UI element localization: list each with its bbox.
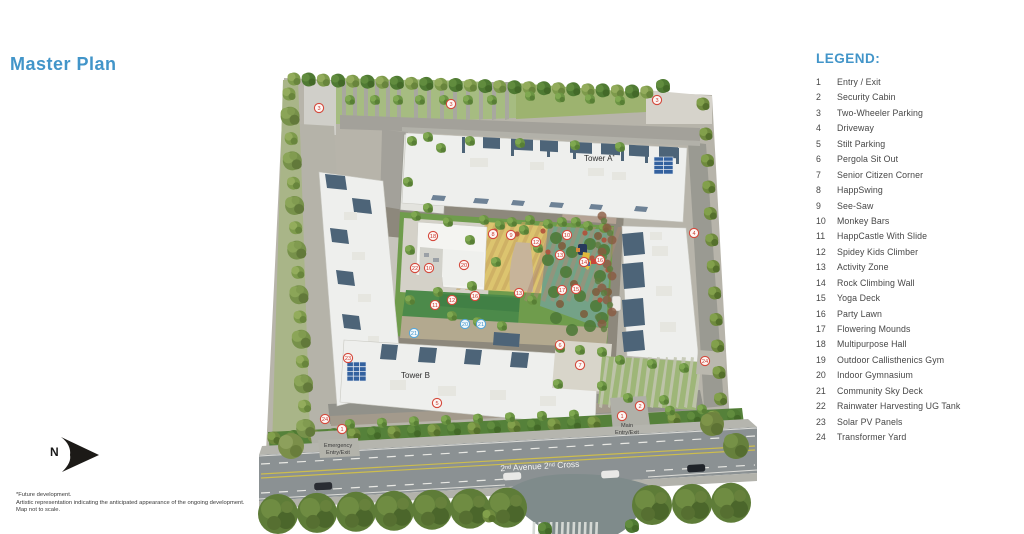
- svg-text:Entry/Exit: Entry/Exit: [615, 430, 639, 436]
- svg-text:17: 17: [559, 288, 565, 294]
- svg-text:10: 10: [426, 266, 432, 272]
- svg-text:24: 24: [702, 359, 708, 365]
- svg-text:1: 1: [340, 427, 343, 433]
- svg-text:Tower B: Tower B: [401, 371, 430, 380]
- svg-text:4: 4: [692, 231, 695, 237]
- svg-text:6: 6: [558, 343, 561, 349]
- svg-text:Main: Main: [621, 423, 633, 429]
- svg-text:23: 23: [345, 356, 351, 362]
- svg-text:21: 21: [478, 322, 484, 328]
- svg-text:21: 21: [411, 331, 417, 337]
- svg-text:20: 20: [462, 322, 468, 328]
- svg-text:5: 5: [435, 401, 438, 407]
- svg-text:Tower A*: Tower A*: [584, 154, 615, 163]
- svg-text:13: 13: [516, 291, 522, 297]
- svg-text:14: 14: [581, 260, 587, 266]
- svg-text:11: 11: [432, 303, 438, 309]
- svg-text:24: 24: [322, 417, 328, 423]
- svg-text:9: 9: [509, 233, 512, 239]
- svg-text:16: 16: [472, 294, 478, 300]
- svg-text:18: 18: [430, 234, 436, 240]
- svg-text:12: 12: [533, 240, 539, 246]
- svg-text:Emergency: Emergency: [324, 443, 352, 449]
- svg-text:22: 22: [412, 266, 418, 272]
- svg-text:12: 12: [449, 298, 455, 304]
- svg-text:16: 16: [597, 258, 603, 264]
- svg-text:2: 2: [638, 404, 641, 410]
- svg-text:3: 3: [449, 102, 452, 108]
- svg-text:3: 3: [317, 106, 320, 112]
- svg-text:10: 10: [564, 233, 570, 239]
- svg-text:20: 20: [461, 263, 467, 269]
- svg-text:Entry/Exit: Entry/Exit: [326, 450, 350, 456]
- svg-text:3: 3: [655, 98, 658, 104]
- svg-text:7: 7: [578, 363, 581, 369]
- svg-text:15: 15: [573, 287, 579, 293]
- svg-text:1: 1: [620, 414, 623, 420]
- svg-text:8: 8: [491, 232, 494, 238]
- svg-text:13: 13: [557, 253, 563, 259]
